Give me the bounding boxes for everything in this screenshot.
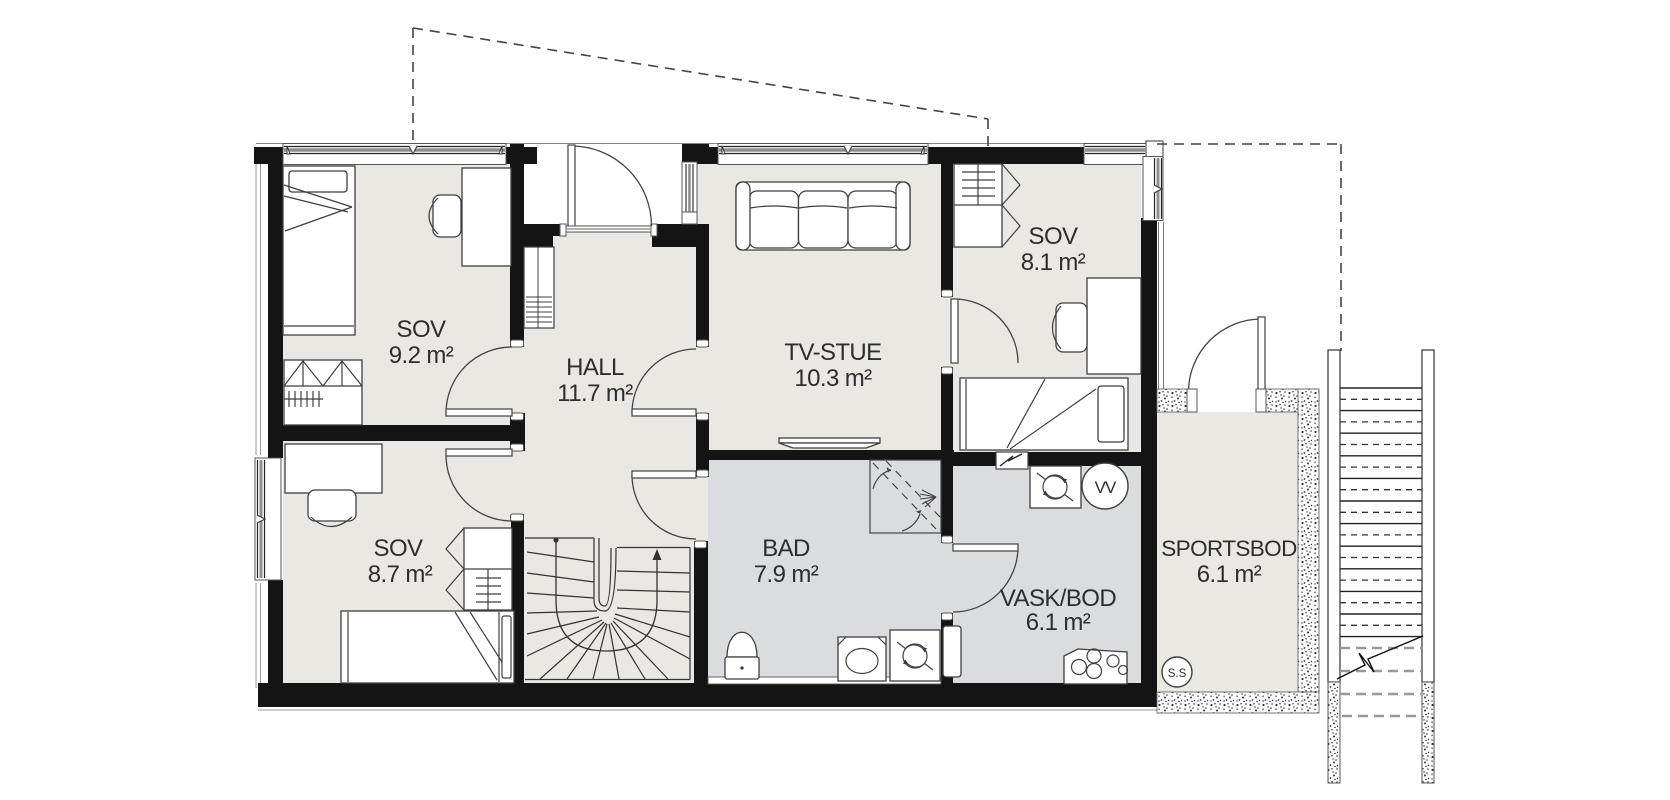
svg-text:9.2 m²: 9.2 m² <box>389 342 454 369</box>
svg-text:S.S: S.S <box>1168 668 1187 680</box>
svg-text:TV-STUE: TV-STUE <box>784 339 881 366</box>
svg-text:11.7 m²: 11.7 m² <box>557 380 633 407</box>
svg-text:6.1 m²: 6.1 m² <box>1026 609 1091 636</box>
svg-text:BAD: BAD <box>762 535 810 562</box>
svg-text:VV: VV <box>1095 478 1117 497</box>
svg-text:SPORTSBOD: SPORTSBOD <box>1161 536 1297 561</box>
svg-text:10.3 m²: 10.3 m² <box>794 365 872 392</box>
svg-text:8.7 m²: 8.7 m² <box>368 561 433 588</box>
svg-text:HALL: HALL <box>566 354 624 381</box>
svg-text:SOV: SOV <box>397 316 446 343</box>
svg-text:6.1 m²: 6.1 m² <box>1197 561 1262 588</box>
svg-text:SOV: SOV <box>374 535 423 562</box>
svg-text:VASK/BOD: VASK/BOD <box>1000 585 1116 612</box>
svg-text:8.1 m²: 8.1 m² <box>1021 249 1086 276</box>
svg-text:SOV: SOV <box>1029 223 1078 250</box>
svg-text:7.9 m²: 7.9 m² <box>754 561 819 588</box>
